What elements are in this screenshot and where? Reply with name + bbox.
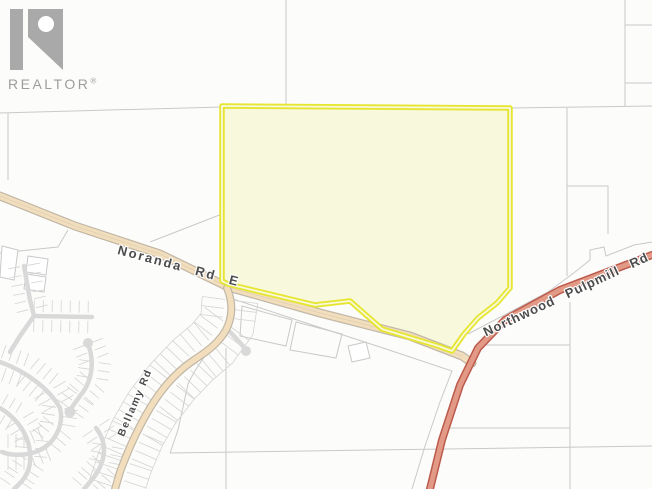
realtor-logo: REALTOR® — [8, 8, 118, 92]
realtor-wordmark: REALTOR® — [8, 76, 118, 92]
realtor-r-icon — [8, 8, 66, 72]
